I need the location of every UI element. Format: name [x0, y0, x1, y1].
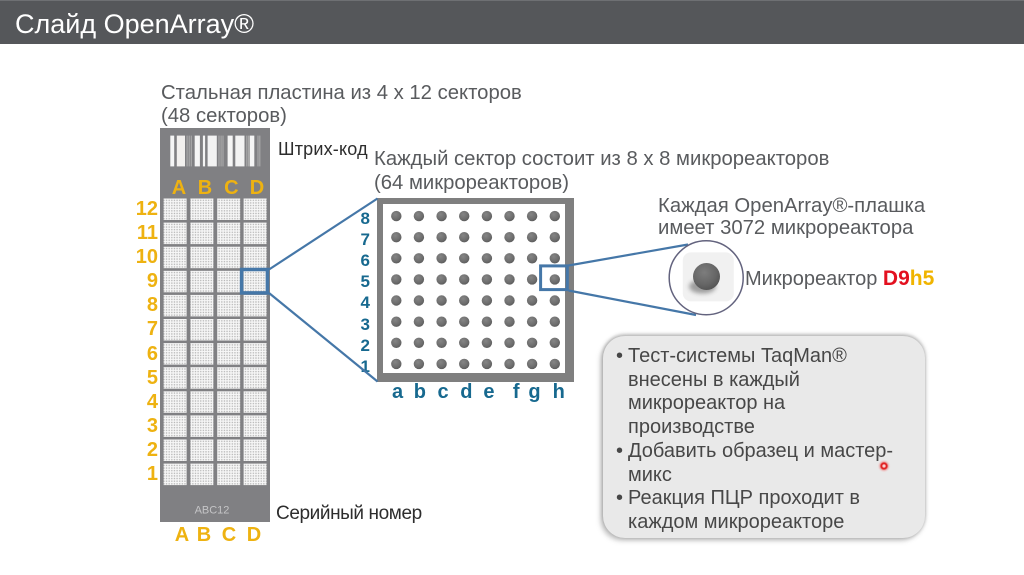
svg-text:A: A: [172, 177, 186, 199]
svg-text:D: D: [250, 177, 264, 199]
svg-text:ABC12: ABC12: [195, 504, 230, 516]
svg-text:C: C: [224, 177, 238, 199]
svg-text:B: B: [198, 177, 212, 199]
